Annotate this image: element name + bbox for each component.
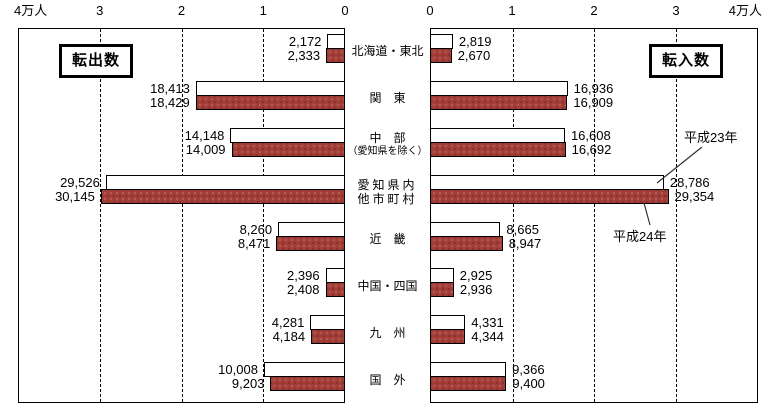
value-label: 4,331 <box>471 315 504 330</box>
category-label-line: 愛知県内 <box>357 178 417 192</box>
chart-row: 16,93616,909 <box>431 76 757 123</box>
bar-h23-out <box>264 362 345 377</box>
legend-in-label: 転入数 <box>662 52 710 69</box>
value-label: 16,608 <box>571 128 611 143</box>
bar-h24-in <box>430 189 669 204</box>
bar-h23-in <box>430 81 568 96</box>
chart-row: 18,41318,429 <box>19 76 344 123</box>
axis-out: 4万人3210 <box>18 3 345 19</box>
value-label: 8,665 <box>506 222 539 237</box>
legend-in-box: 転入数 <box>649 44 723 78</box>
chart-row: 9,3669,400 <box>431 357 757 404</box>
value-label: 9,203 <box>232 376 265 391</box>
bar-h23-in <box>430 128 565 143</box>
category-label-line: 他市町村 <box>357 192 417 206</box>
value-label: 14,148 <box>185 128 225 143</box>
value-label: 2,172 <box>289 34 322 49</box>
axis-tick: 2 <box>590 3 597 19</box>
chart-row: 8,2608,471 <box>19 217 344 264</box>
annotation-h24: 平成24年 <box>613 226 666 245</box>
value-label: 29,354 <box>675 189 715 204</box>
category-label-line: 国 外 <box>369 373 405 387</box>
value-label: 4,281 <box>272 315 305 330</box>
bar-h23-out <box>327 34 345 49</box>
category-label: 北海道・東北 <box>345 28 430 75</box>
axis-tick: 0 <box>426 3 433 19</box>
value-label: 8,947 <box>509 236 542 251</box>
chart-row: 2,3962,408 <box>19 263 344 310</box>
value-label: 9,400 <box>512 376 545 391</box>
legend-out-box: 転出数 <box>59 44 133 78</box>
bar-h24-in <box>430 95 567 110</box>
bar-h24-out <box>311 329 345 344</box>
value-label: 16,692 <box>572 142 612 157</box>
category-label-line: 中国・四国 <box>357 279 417 293</box>
chart-row: 2,9252,936 <box>431 263 757 310</box>
bar-h24-out <box>326 282 346 297</box>
bar-h24-out <box>276 236 345 251</box>
value-label: 8,471 <box>238 236 271 251</box>
chart-row: 8,6658,947 <box>431 217 757 264</box>
bar-h23-in <box>430 175 664 190</box>
bar-h23-out <box>326 268 345 283</box>
category-label: 愛知県内他市町村 <box>345 169 430 216</box>
value-label: 10,008 <box>218 362 258 377</box>
bar-h24-in <box>430 376 506 391</box>
value-label: 4,344 <box>471 329 504 344</box>
category-label: 近 畿 <box>345 216 430 263</box>
bar-h23-in <box>430 268 454 283</box>
category-label: 関 東 <box>345 75 430 122</box>
bar-h24-out <box>232 142 345 157</box>
chart-row: 14,14814,009 <box>19 123 344 170</box>
migration-chart: 4万人3210 01234万人 2,1722,33318,41318,42914… <box>0 0 781 411</box>
value-label: 2,936 <box>460 282 493 297</box>
axis-tick: 1 <box>508 3 515 19</box>
category-label: 国 外 <box>345 356 430 403</box>
value-label: 2,670 <box>458 48 491 63</box>
bar-h23-out <box>196 81 345 96</box>
category-labels: 北海道・東北関 東中 部（愛知県を除く）愛知県内他市町村近 畿中国・四国九 州国… <box>345 28 430 403</box>
bar-h23-in <box>430 34 453 49</box>
bar-h24-in <box>430 329 465 344</box>
value-label: 14,009 <box>186 142 226 157</box>
axis-tick: 1 <box>260 3 267 19</box>
value-label: 16,936 <box>574 81 614 96</box>
chart-row: 28,78629,354 <box>431 170 757 217</box>
category-label: 九 州 <box>345 309 430 356</box>
bar-h24-in <box>430 236 503 251</box>
axis-tick: 4万人 <box>14 3 47 19</box>
category-label: 中 部（愛知県を除く） <box>345 122 430 169</box>
value-label: 9,366 <box>512 362 545 377</box>
value-label: 8,260 <box>240 222 273 237</box>
panel-in: 2,8192,67016,93616,90916,60816,69228,786… <box>430 28 758 403</box>
axis-tick: 3 <box>672 3 679 19</box>
value-label: 18,413 <box>150 81 190 96</box>
bar-h24-out <box>101 189 345 204</box>
category-label-line: 九 州 <box>369 326 405 340</box>
value-label: 28,786 <box>670 175 710 190</box>
category-label-line: 関 東 <box>369 91 405 105</box>
bar-h23-out <box>278 222 345 237</box>
bar-h23-in <box>430 362 506 377</box>
axis-tick: 3 <box>96 3 103 19</box>
category-label-line: 北海道・東北 <box>351 44 423 58</box>
bar-h23-out <box>310 315 345 330</box>
chart-row: 4,2814,184 <box>19 310 344 357</box>
chart-row: 29,52630,145 <box>19 170 344 217</box>
annotation-h23: 平成23年 <box>684 127 737 146</box>
value-label: 18,429 <box>150 95 190 110</box>
axis-tick: 0 <box>341 3 348 19</box>
bar-h24-out <box>326 48 345 63</box>
value-label: 2,396 <box>287 268 320 283</box>
value-label: 2,925 <box>460 268 493 283</box>
bar-h24-in <box>430 142 566 157</box>
category-label-line: 近 畿 <box>369 232 405 246</box>
value-label: 30,145 <box>55 189 95 204</box>
axis-tick: 2 <box>178 3 185 19</box>
bar-h24-out <box>270 376 345 391</box>
bar-h24-out <box>196 95 345 110</box>
category-label: 中国・四国 <box>345 262 430 309</box>
bar-h23-in <box>430 222 500 237</box>
chart-row: 4,3314,344 <box>431 310 757 357</box>
axis-in: 01234万人 <box>430 3 758 19</box>
value-label: 16,909 <box>573 95 613 110</box>
value-label: 2,819 <box>459 34 492 49</box>
category-label-line: （愛知県を除く） <box>348 145 428 159</box>
value-label: 2,408 <box>287 282 320 297</box>
panel-out: 2,1722,33318,41318,42914,14814,00929,526… <box>18 28 345 403</box>
bar-h24-in <box>430 282 454 297</box>
bar-h23-out <box>230 128 345 143</box>
value-label: 29,526 <box>60 175 100 190</box>
bar-h23-in <box>430 315 465 330</box>
legend-out-label: 転出数 <box>72 52 120 69</box>
value-label: 4,184 <box>273 329 306 344</box>
value-label: 2,333 <box>288 48 321 63</box>
category-label-line: 中 部 <box>369 131 405 145</box>
bar-h23-out <box>106 175 345 190</box>
axis-tick: 4万人 <box>729 3 762 19</box>
chart-row: 10,0089,203 <box>19 357 344 404</box>
bar-h24-in <box>430 48 452 63</box>
